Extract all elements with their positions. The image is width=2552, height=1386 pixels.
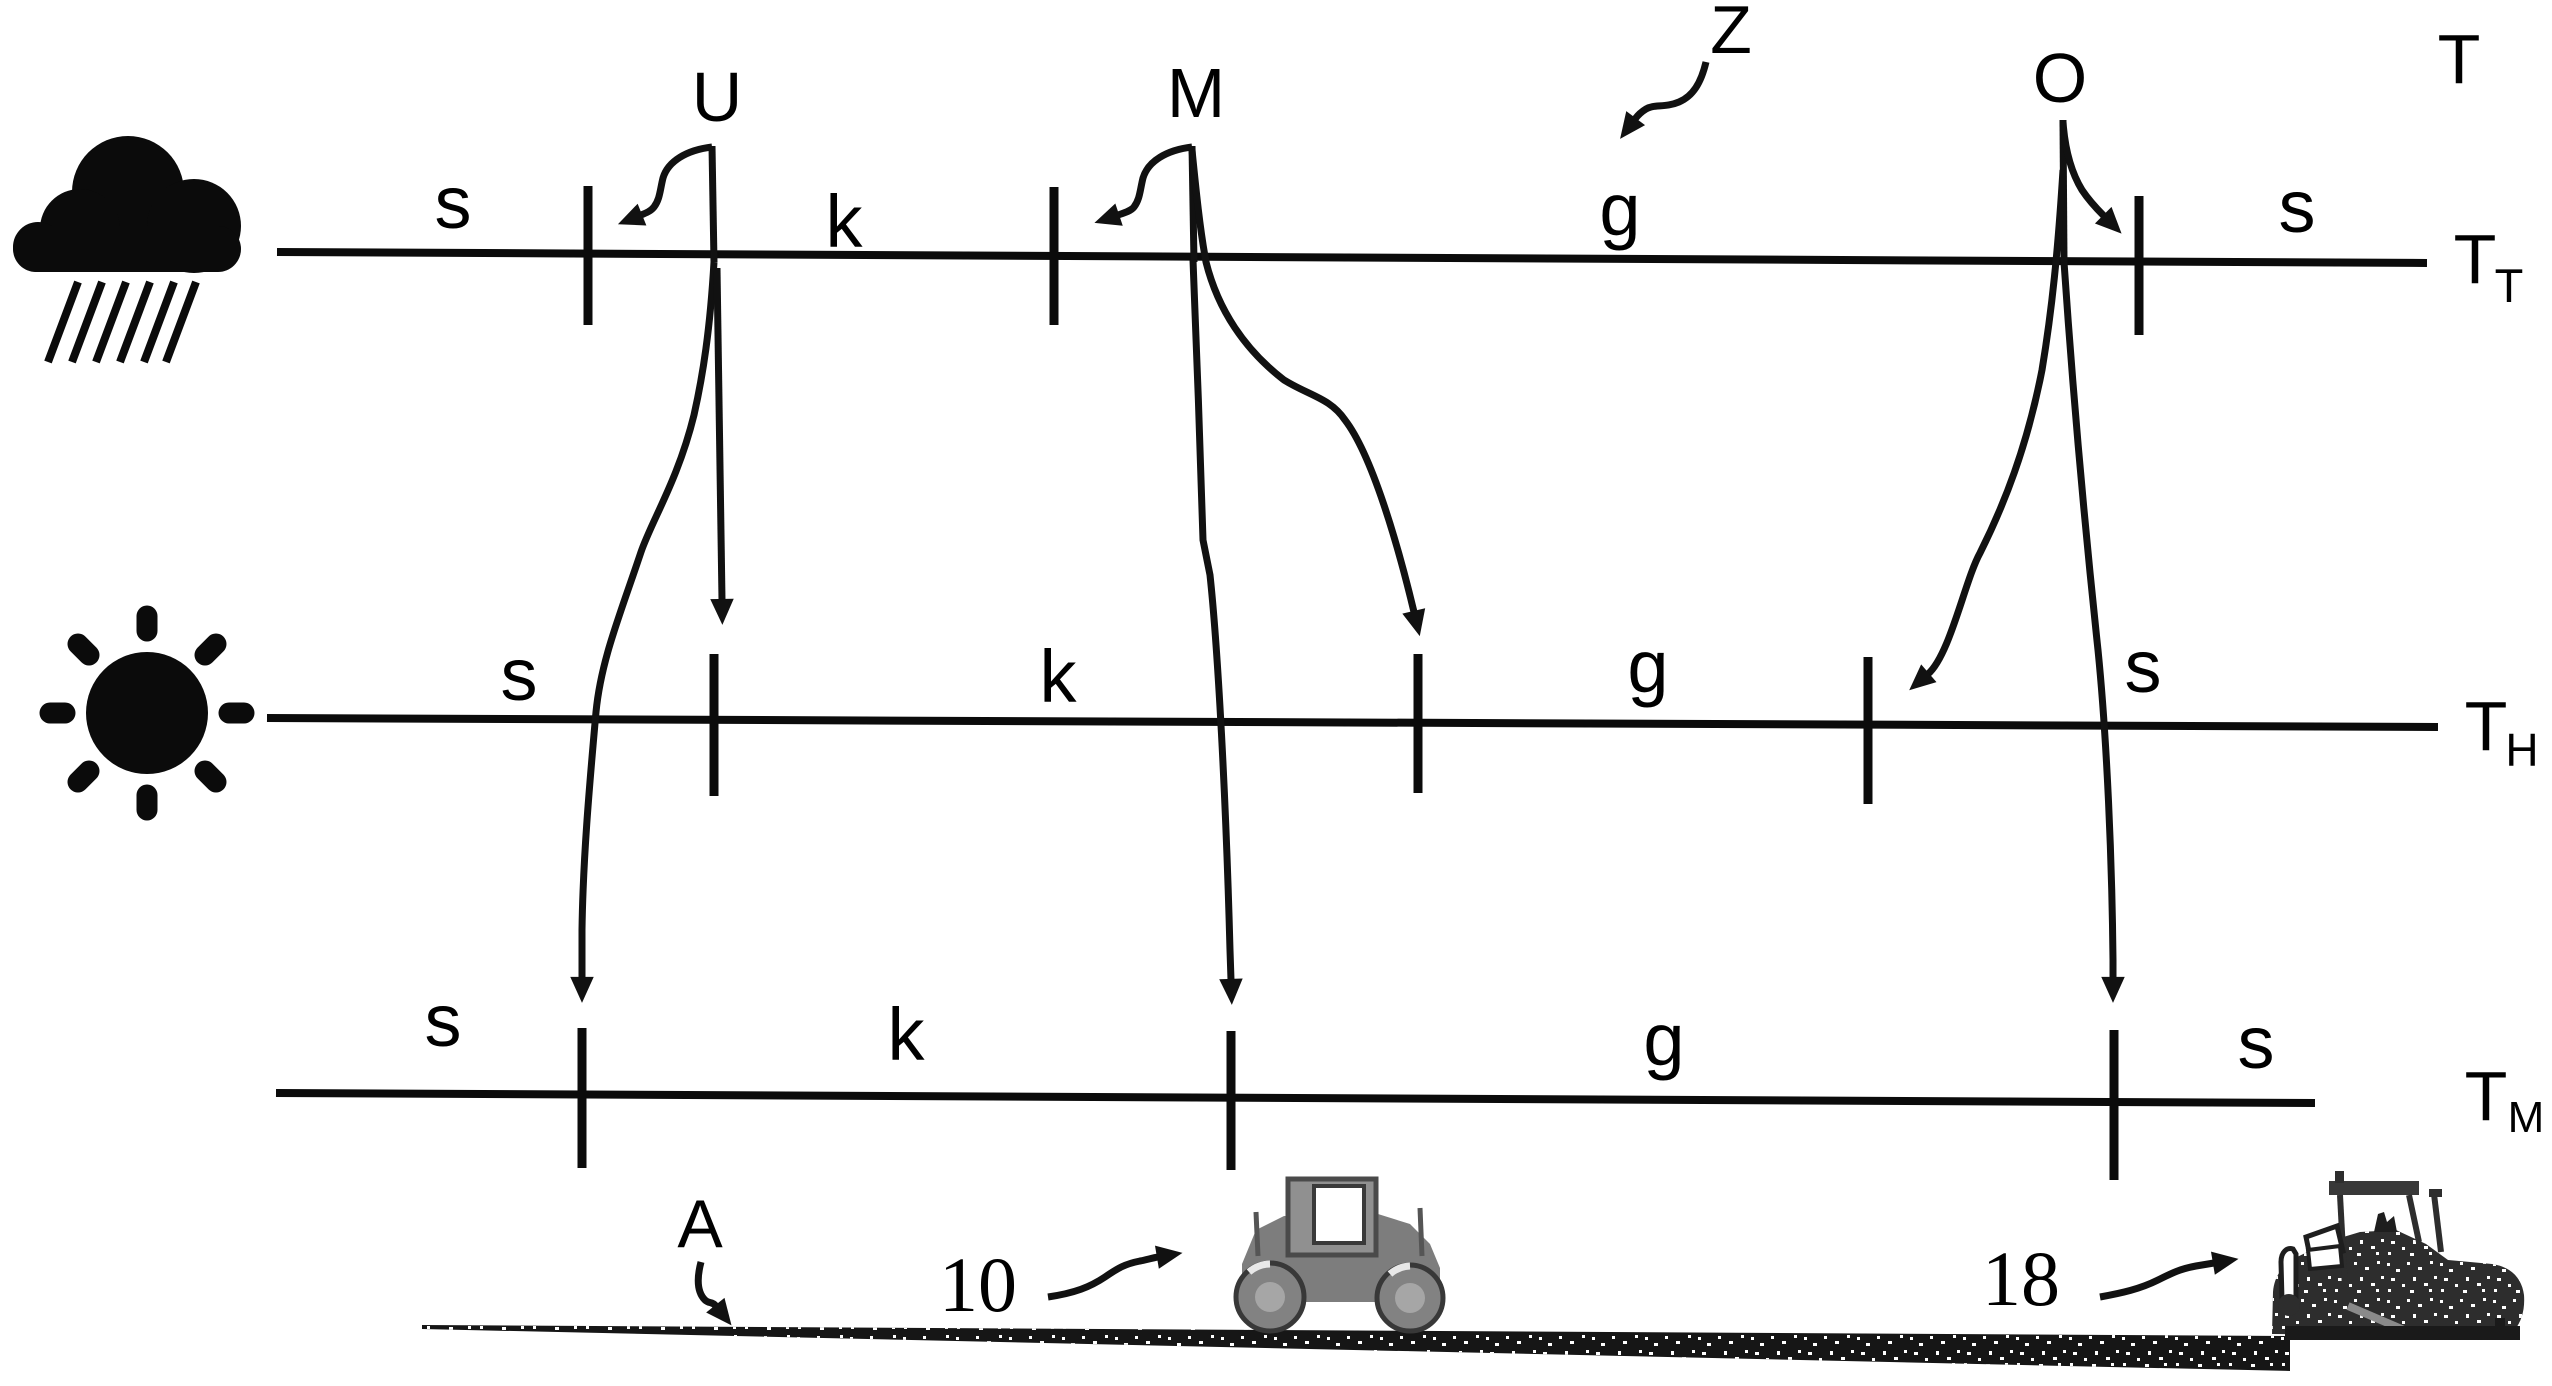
svg-text:s: s	[501, 633, 538, 716]
svg-text:g: g	[1599, 168, 1640, 251]
svg-text:k: k	[826, 180, 864, 263]
svg-text:T: T	[2465, 687, 2508, 765]
svg-text:M: M	[1167, 54, 1225, 132]
svg-text:s: s	[425, 979, 462, 1062]
svg-text:s: s	[2279, 165, 2316, 248]
svg-text:s: s	[2125, 625, 2162, 708]
svg-text:O: O	[2033, 39, 2087, 117]
svg-text:Z: Z	[1710, 0, 1752, 68]
svg-text:g: g	[1627, 625, 1668, 708]
svg-text:k: k	[888, 993, 926, 1076]
svg-text:A: A	[677, 1186, 723, 1262]
svg-text:s: s	[2238, 1001, 2275, 1084]
svg-text:k: k	[1040, 635, 1078, 718]
svg-text:10: 10	[939, 1241, 1017, 1328]
svg-text:T: T	[2465, 1057, 2508, 1135]
svg-text:T: T	[2454, 220, 2497, 298]
svg-text:M: M	[2508, 1093, 2545, 1142]
svg-text:s: s	[435, 161, 472, 244]
svg-text:H: H	[2505, 724, 2538, 776]
svg-text:T: T	[2495, 259, 2524, 312]
svg-text:T: T	[2438, 20, 2481, 98]
svg-text:18: 18	[1982, 1235, 2060, 1322]
svg-text:g: g	[1643, 998, 1684, 1081]
svg-text:U: U	[692, 58, 743, 136]
